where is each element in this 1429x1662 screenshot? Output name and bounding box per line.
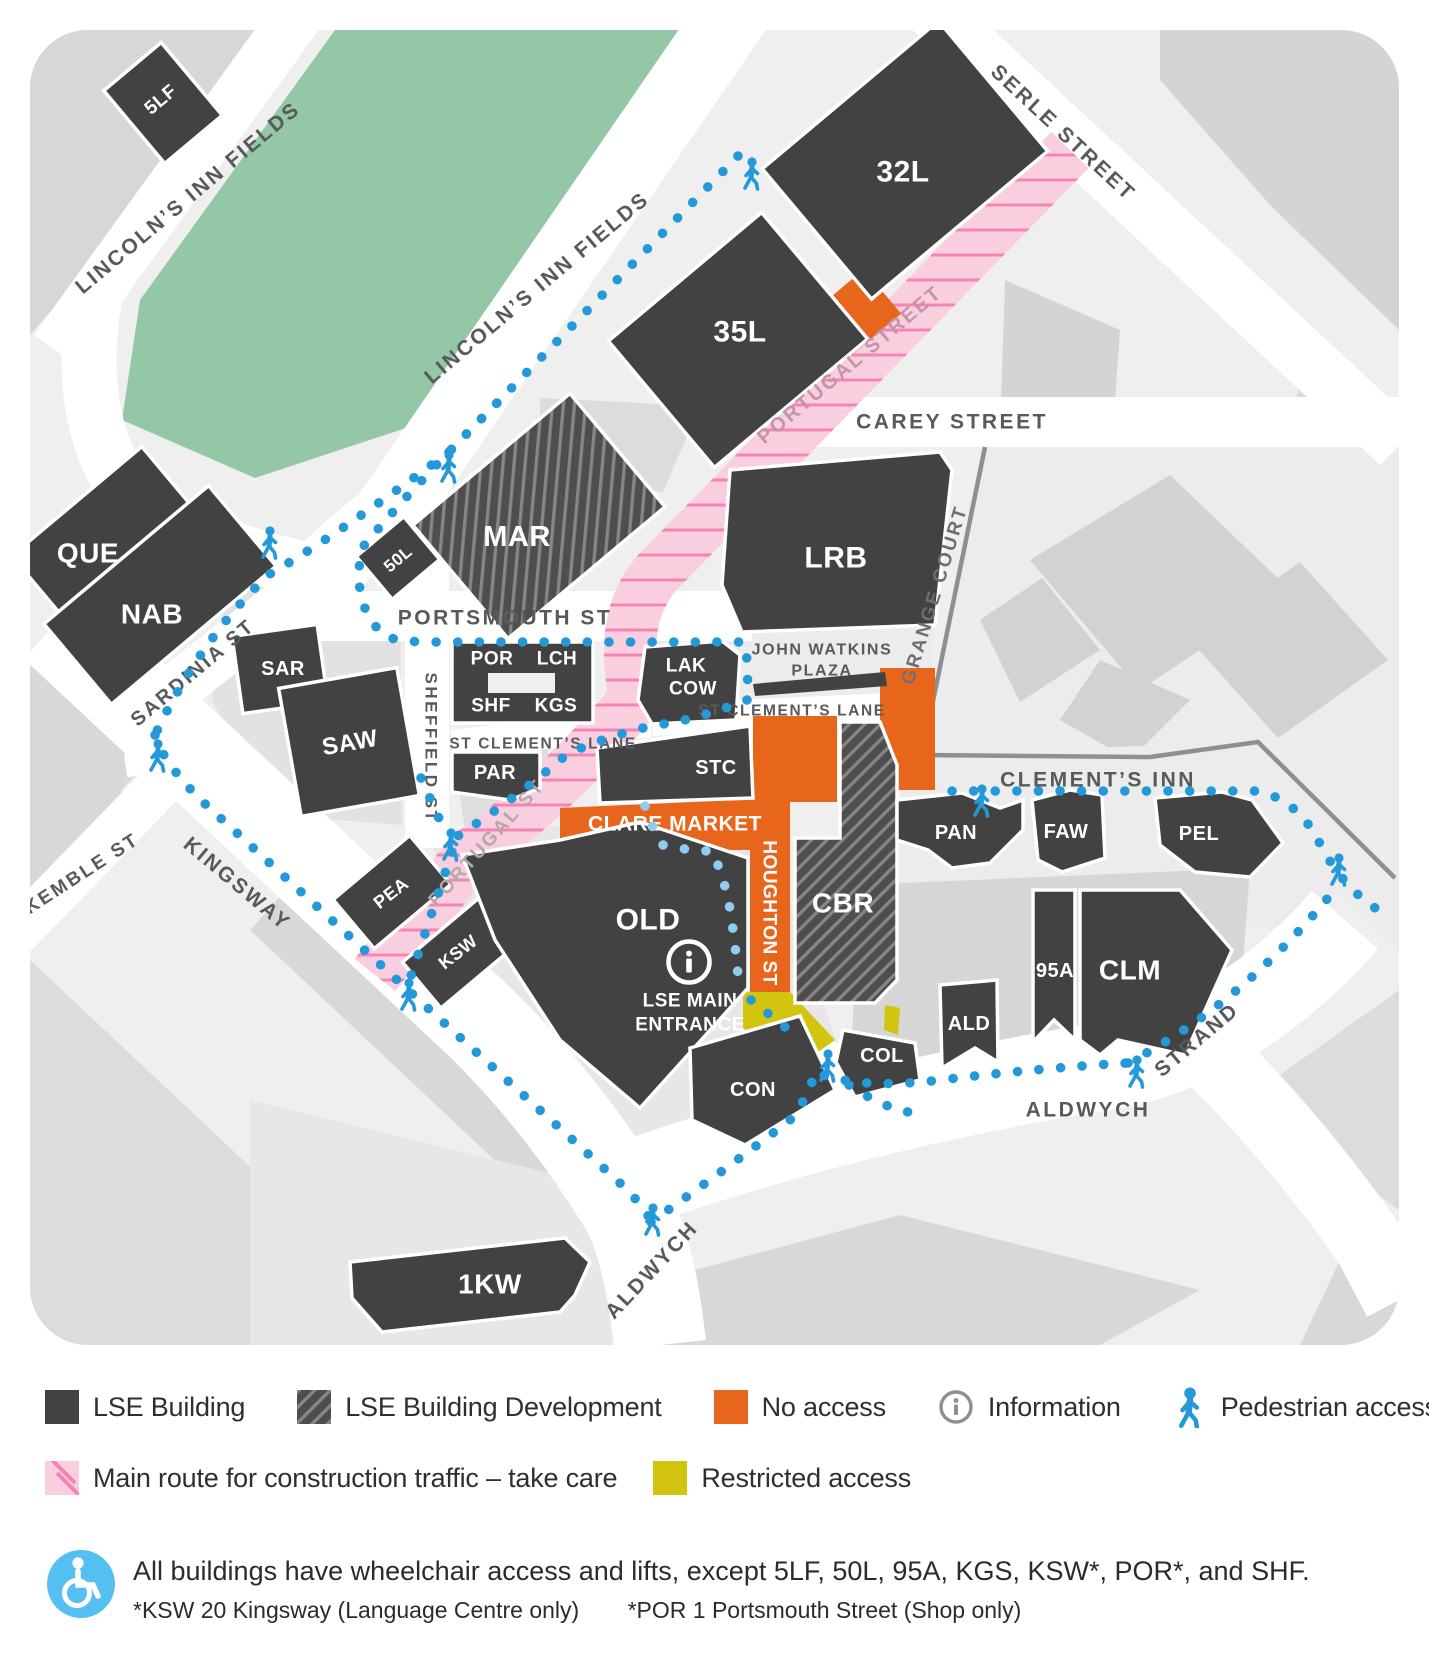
svg-text:CBR: CBR (812, 888, 874, 919)
svg-text:FAW: FAW (1044, 821, 1089, 843)
svg-text:SAR: SAR (261, 658, 305, 680)
legend-row-2: Main route for construction traffic – ta… (45, 1461, 1385, 1495)
legend-item-information: Information (938, 1389, 1121, 1425)
svg-text:MAR: MAR (483, 521, 551, 553)
legend: LSE Building LSE Building Development No… (45, 1386, 1385, 1528)
footnote-por: *POR 1 Portsmouth Street (Shop only) (628, 1597, 1022, 1623)
lse-building-development-swatch (297, 1390, 331, 1424)
svg-text:PAR: PAR (474, 762, 516, 784)
legend-label: Restricted access (701, 1463, 911, 1494)
svg-text:PEL: PEL (1179, 823, 1219, 845)
svg-text:CLM: CLM (1099, 955, 1161, 986)
svg-text:32L: 32L (876, 156, 929, 189)
legend-label: Information (988, 1392, 1121, 1423)
svg-text:SHF: SHF (471, 696, 511, 717)
wheelchair-icon (45, 1548, 117, 1620)
accessibility-footnotes: *KSW 20 Kingsway (Language Centre only) … (133, 1597, 1310, 1624)
legend-label: No access (762, 1392, 886, 1423)
legend-label: Pedestrian access (1221, 1392, 1429, 1423)
building-95a: 95A (1033, 890, 1075, 1042)
plaza-label-line2: PLAZA (791, 663, 852, 680)
legend-item-lse-building-development: LSE Building Development (297, 1390, 661, 1424)
legend-label: LSE Building Development (345, 1392, 661, 1423)
street-label-carey-street: CAREY STREET (856, 411, 1048, 434)
legend-item-lse-building: LSE Building (45, 1390, 245, 1424)
svg-text:KGS: KGS (535, 696, 578, 717)
main-entrance-label-line1: LSE MAIN (643, 991, 738, 1012)
building-faw: FAW (1032, 790, 1105, 872)
building-lrb: LRB (722, 452, 952, 632)
svg-text:STC: STC (695, 757, 737, 779)
plaza-label-line1: JOHN WATKINS (752, 642, 893, 659)
street-label-st-clements-lane-1: ST CLEMENT’S LANE (449, 736, 636, 753)
building-por-lch-shf-kgs: POR LCH SHF KGS (452, 642, 593, 723)
restricted-access-swatch (653, 1461, 687, 1495)
legend-row-1: LSE Building LSE Building Development No… (45, 1386, 1385, 1428)
svg-text:1KW: 1KW (458, 1269, 522, 1300)
building-saw: SAW (279, 668, 420, 817)
no-access-clare-block (753, 716, 837, 802)
campus-map-page: 5LF 32L 35L QUE NAB MAR (0, 0, 1429, 1662)
pedestrian-icon (1173, 1386, 1207, 1428)
no-access-swatch (714, 1390, 748, 1424)
legend-label: LSE Building (93, 1392, 245, 1423)
legend-label: Main route for construction traffic – ta… (93, 1463, 617, 1494)
svg-text:LCH: LCH (537, 649, 578, 670)
svg-text:LRB: LRB (804, 542, 867, 575)
svg-text:POR: POR (471, 649, 514, 670)
info-icon (938, 1389, 974, 1425)
legend-item-construction-route: Main route for construction traffic – ta… (45, 1461, 617, 1495)
accessibility-note-line: All buildings have wheelchair access and… (133, 1556, 1310, 1587)
clare-market-label: CLARE MARKET (588, 813, 762, 836)
svg-text:COL: COL (860, 1045, 904, 1067)
main-entrance-label-line2: ENTRANCE (635, 1015, 745, 1036)
svg-text:35L: 35L (713, 316, 766, 349)
lse-building-swatch (45, 1390, 79, 1424)
svg-text:ALD: ALD (948, 1013, 991, 1035)
accessibility-text: All buildings have wheelchair access and… (133, 1548, 1310, 1624)
legend-item-pedestrian-access: Pedestrian access (1173, 1386, 1429, 1428)
svg-text:CON: CON (730, 1079, 776, 1101)
accessibility-note: All buildings have wheelchair access and… (45, 1548, 1310, 1624)
campus-map: 5LF 32L 35L QUE NAB MAR (0, 0, 1429, 1352)
footnote-ksw: *KSW 20 Kingsway (Language Centre only) (133, 1597, 579, 1623)
street-label-aldwych-east: ALDWYCH (1026, 1099, 1151, 1122)
svg-text:OLD: OLD (616, 904, 681, 937)
legend-item-restricted-access: Restricted access (653, 1461, 911, 1495)
svg-text:95A: 95A (1036, 960, 1074, 982)
legend-item-no-access: No access (714, 1390, 886, 1424)
svg-text:PAN: PAN (935, 822, 977, 844)
svg-text:NAB: NAB (121, 599, 183, 630)
svg-text:COW: COW (669, 679, 717, 700)
houghton-st-label: HOUGHTON ST (759, 840, 780, 986)
construction-route-swatch (45, 1461, 79, 1495)
street-label-portsmouth-st: PORTSMOUTH ST (398, 607, 613, 630)
svg-text:LAK: LAK (666, 656, 707, 677)
svg-text:QUE: QUE (57, 538, 119, 569)
